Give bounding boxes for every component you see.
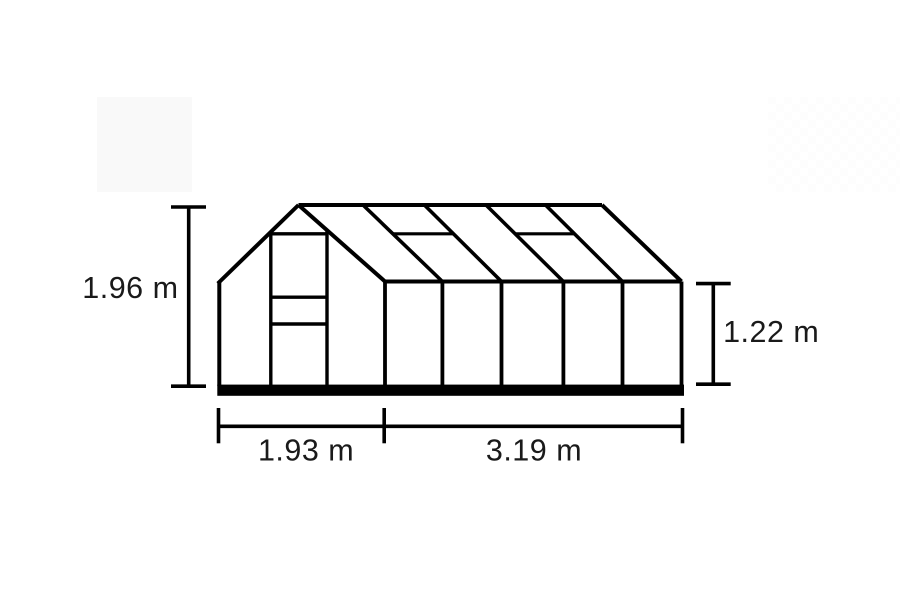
svg-text:3.19 m: 3.19 m [486, 434, 582, 468]
svg-text:1.22 m: 1.22 m [723, 315, 819, 349]
svg-text:1.93 m: 1.93 m [258, 434, 354, 468]
svg-text:1.96 m: 1.96 m [82, 271, 178, 305]
